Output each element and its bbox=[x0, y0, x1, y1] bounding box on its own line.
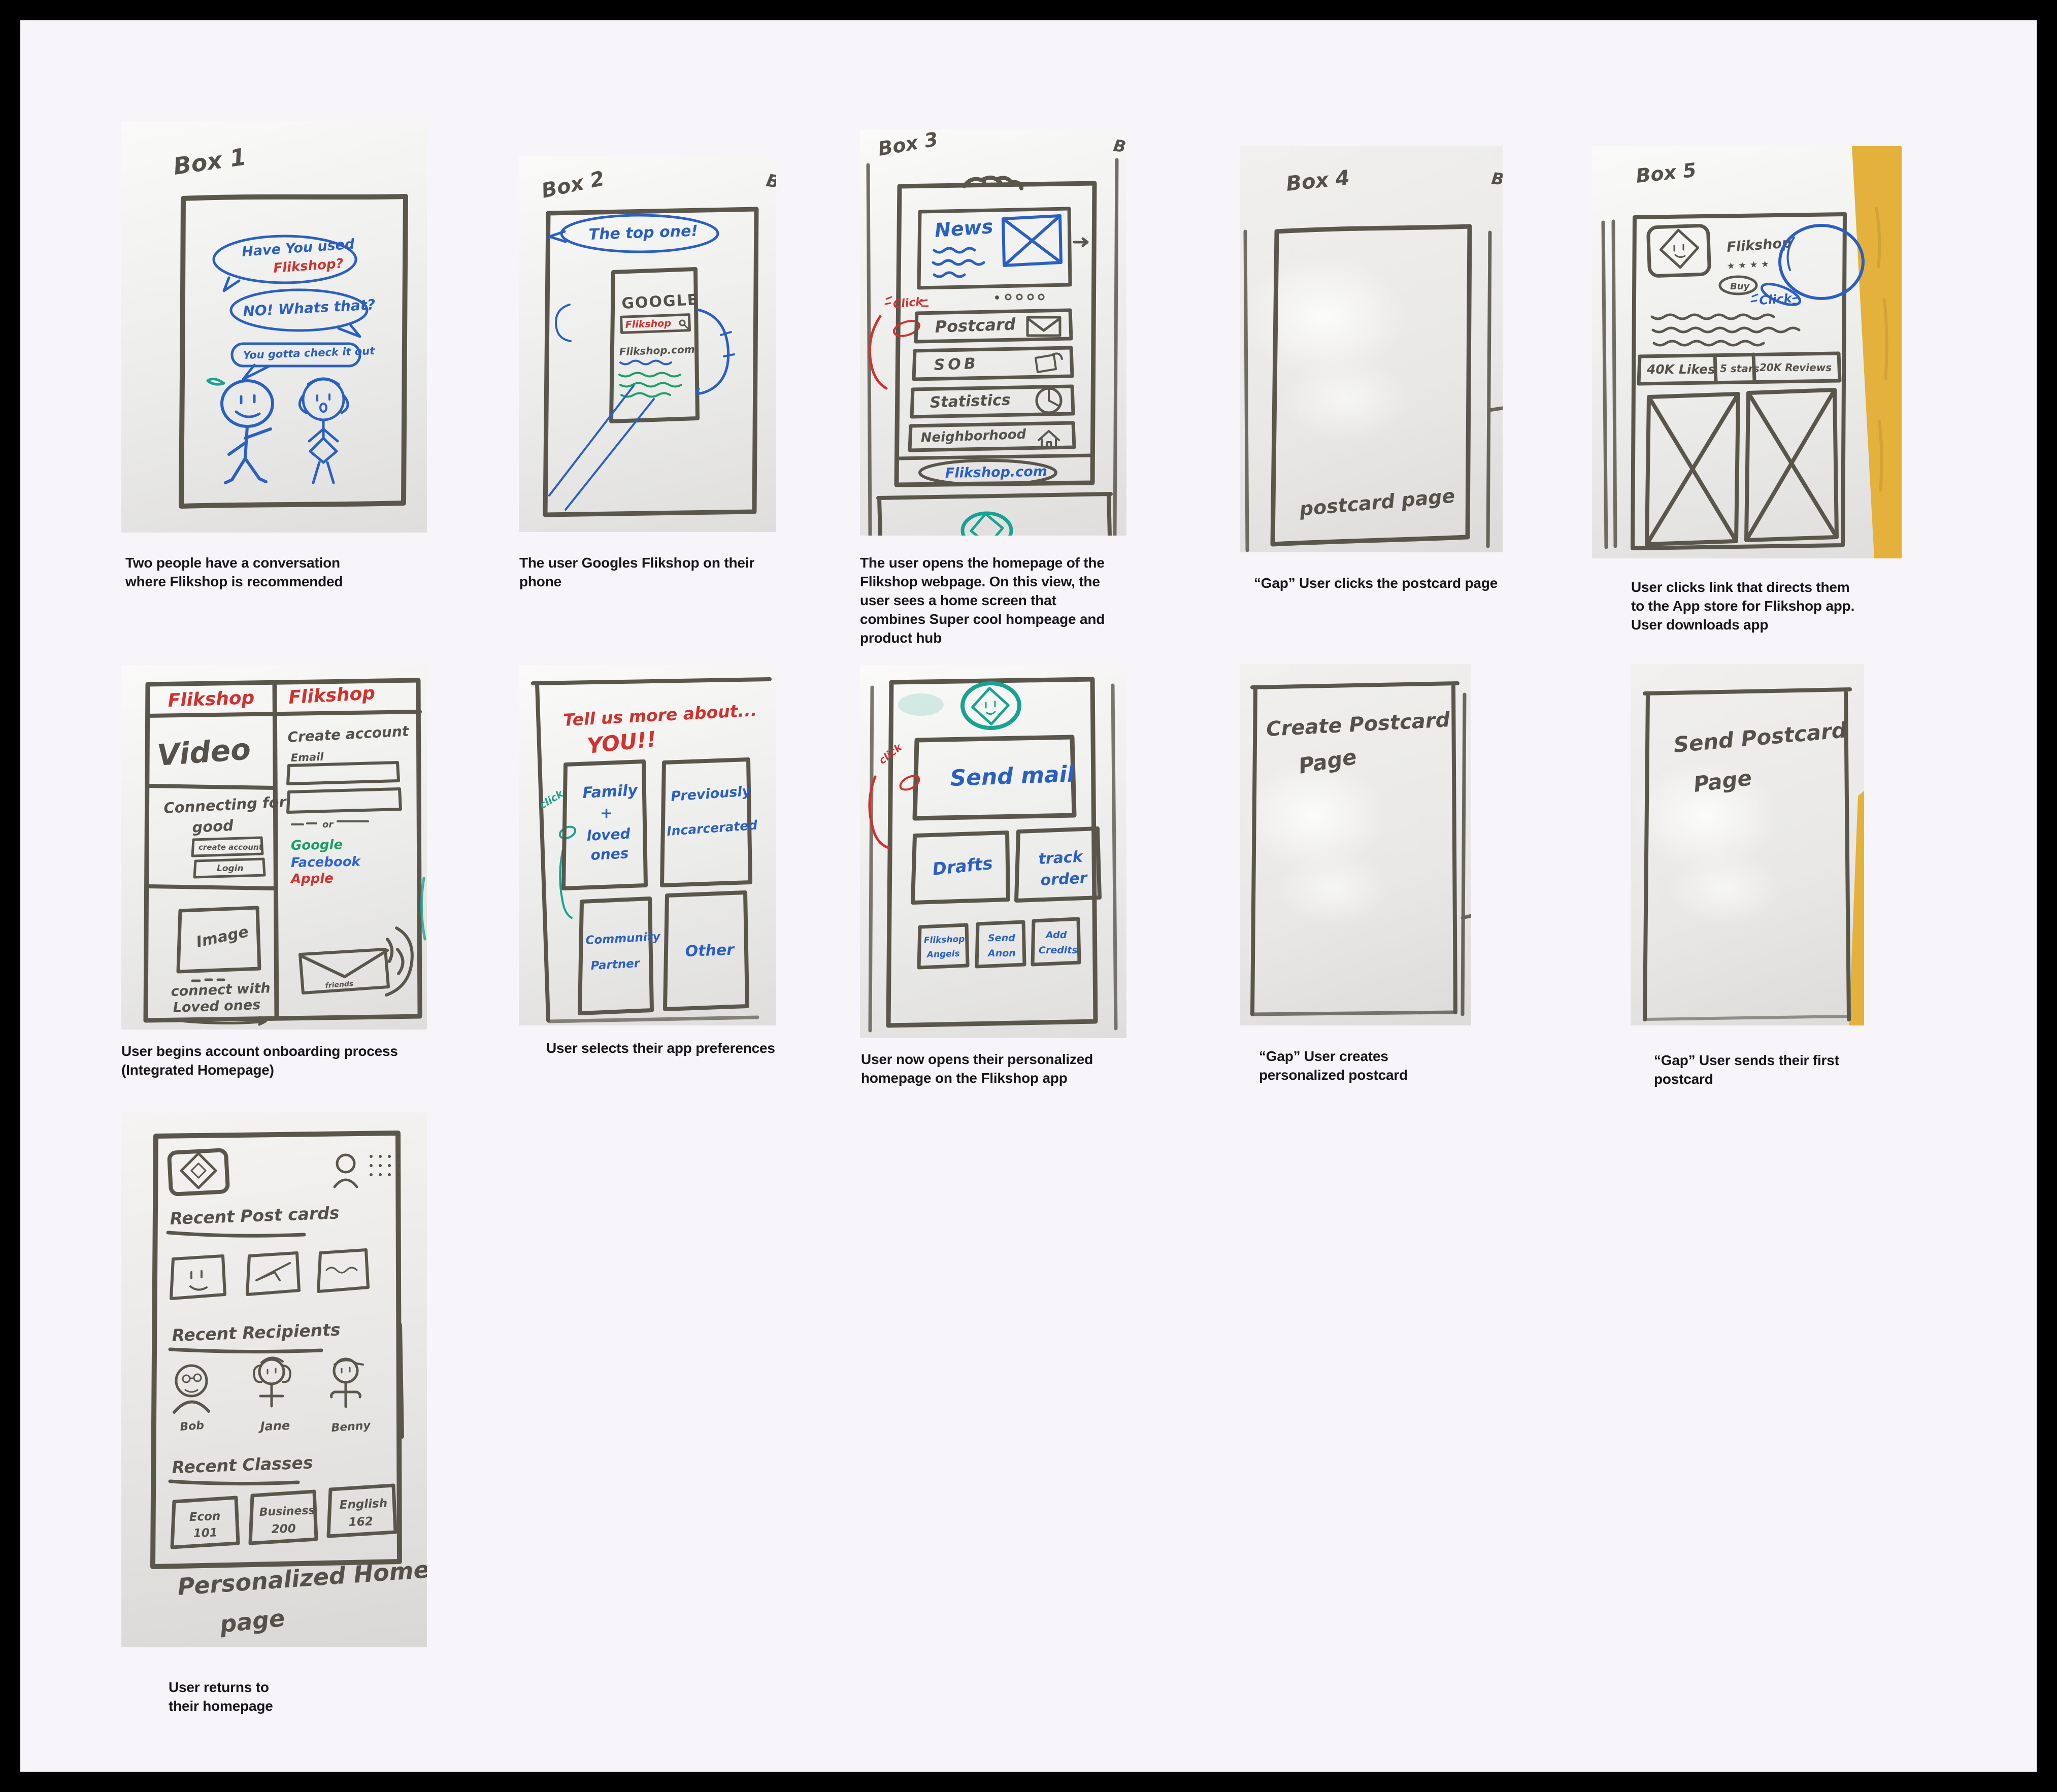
app-icon bbox=[963, 683, 1019, 728]
section-heading-recipients: Recent Recipients bbox=[172, 1319, 341, 1345]
result-snippet-line bbox=[620, 383, 681, 387]
sketch-send-postcard: Send Postcard Page bbox=[1631, 664, 1864, 1025]
svg-text:Credits: Credits bbox=[1039, 945, 1078, 956]
page-note-line2: page bbox=[218, 1604, 286, 1638]
sketch-google-search: Box 2 B The top one! GOOGLE Flikshop Fli… bbox=[519, 156, 776, 532]
storyboard-photo-preferences: Tell us more about... YOU!! click Family… bbox=[519, 665, 776, 1025]
flikshop-highlight: Flikshop? bbox=[273, 256, 344, 276]
postcard-thumb-plane bbox=[247, 1253, 299, 1295]
caption-send-postcard: “Gap” User sends their first postcard bbox=[1654, 1051, 1857, 1088]
svg-text:or: or bbox=[322, 819, 334, 830]
stars-stat: 5 stars bbox=[1720, 362, 1760, 375]
email-label: Email bbox=[290, 751, 324, 764]
hand-sketch bbox=[549, 305, 734, 510]
svg-text:Partner: Partner bbox=[590, 957, 641, 973]
page-note-line2: Page bbox=[1692, 765, 1753, 797]
caption-conversation: Two people have a conversation where Fli… bbox=[125, 553, 369, 591]
svg-text:NO! Whats that?: NO! Whats that? bbox=[243, 296, 376, 320]
apps-grid-icon bbox=[370, 1155, 400, 1176]
page-note: postcard page bbox=[1298, 484, 1456, 520]
nav-row-postcard: Postcard bbox=[916, 310, 1071, 342]
sketch-personalized-home: Recent Post cards Recent Recipients bbox=[121, 1112, 427, 1647]
storyboard-photo-onboarding: Flikshop Flikshop Video Connecting for g… bbox=[121, 665, 427, 1030]
svg-text:English: English bbox=[339, 1497, 387, 1512]
email-input bbox=[288, 762, 399, 784]
caption-create-postcard: “Gap” User creates personalized postcard bbox=[1259, 1047, 1477, 1084]
adjacent-frames bbox=[1603, 221, 1615, 547]
app-icon bbox=[169, 1150, 228, 1194]
news-card: News bbox=[919, 209, 1087, 300]
stats-bar: 40K Likes 5 stars 20K Reviews bbox=[1639, 353, 1840, 384]
drafts-button: Drafts bbox=[913, 833, 1008, 903]
storyboard-photo-send-postcard: Send Postcard Page bbox=[1631, 664, 1864, 1025]
storyboard-photo-postcard-gap: Box 4 B postcard page bbox=[1240, 146, 1503, 552]
flikshop-angels-button: Flikshop Angels bbox=[919, 925, 968, 968]
result-snippet-line bbox=[619, 373, 680, 377]
app-icon bbox=[1648, 225, 1709, 276]
svg-text:Click: Click bbox=[892, 295, 924, 311]
postcard-thumb-note bbox=[318, 1250, 368, 1291]
adjacent-frame-right bbox=[1463, 694, 1471, 1014]
svg-text:Jane: Jane bbox=[258, 1418, 290, 1434]
image-placeholder: Image bbox=[178, 908, 259, 972]
svg-text:Neighborhood: Neighborhood bbox=[920, 427, 1026, 446]
box-label: Box 5 bbox=[1635, 159, 1697, 187]
envelope-icon bbox=[1027, 317, 1060, 336]
wall-background bbox=[1852, 146, 1902, 558]
frame-overdraw bbox=[400, 1325, 402, 1437]
frame-bottom bbox=[549, 1017, 757, 1021]
caption-app-store: User clicks link that directs them to th… bbox=[1631, 578, 1865, 634]
search-engine-logo: GOOGLE bbox=[621, 291, 699, 313]
svg-text:Image: Image bbox=[194, 923, 250, 951]
svg-text:Login: Login bbox=[217, 864, 244, 874]
heading-underline bbox=[168, 1233, 304, 1236]
option-previously-incarcerated: Previously Incarcerated bbox=[662, 759, 758, 885]
svg-text:Business: Business bbox=[259, 1504, 315, 1519]
footer-divider bbox=[899, 455, 1092, 458]
box-label: Box 3 bbox=[876, 129, 940, 160]
speech-bubble-2: NO! Whats that? bbox=[231, 290, 376, 337]
svg-text:Loved ones: Loved ones bbox=[173, 997, 261, 1016]
svg-text:Flikshop: Flikshop bbox=[923, 934, 965, 946]
pie-chart-icon bbox=[1037, 388, 1061, 413]
frame-bottom bbox=[1252, 1012, 1453, 1014]
caption-google-search: The user Googles Flikshop on their phone bbox=[519, 553, 783, 591]
storyboard-canvas: Box 1 Have You used Flikshop? NO! Whats … bbox=[20, 20, 2037, 1772]
heading: Tell us more about... bbox=[562, 700, 757, 730]
screenshot-placeholders bbox=[1647, 390, 1837, 544]
adjacent-frame-left bbox=[1245, 231, 1247, 550]
caption-postcard-gap: “Gap” User clicks the postcard page bbox=[1254, 574, 1518, 592]
recipient-bob: Bob bbox=[174, 1366, 209, 1434]
heading-emphasis: YOU!! bbox=[586, 726, 657, 758]
image-placeholder-icon bbox=[1003, 216, 1061, 266]
nav-row-neighborhood: Neighborhood bbox=[910, 423, 1074, 450]
frame-bottom bbox=[1646, 1016, 1848, 1019]
neighbor-box-label: B bbox=[765, 170, 776, 192]
envelope-in-hand: friends bbox=[300, 928, 412, 995]
search-query: Flikshop bbox=[625, 318, 671, 330]
svg-text:good: good bbox=[192, 817, 234, 836]
caption-preferences: User selects their app preferences bbox=[546, 1039, 785, 1057]
svg-text:ones: ones bbox=[590, 845, 629, 864]
section-heading-classes: Recent Classes bbox=[172, 1452, 313, 1477]
caption-onboarding: User begins account onboarding process (… bbox=[121, 1042, 406, 1079]
neighbor-box-label: B bbox=[1490, 169, 1503, 189]
caption-homepage-hub: The user opens the homepage of the Fliks… bbox=[860, 553, 1114, 647]
stray-marker-line bbox=[421, 878, 425, 939]
house-icon bbox=[1039, 431, 1059, 447]
svg-text:Create account: Create account bbox=[287, 722, 410, 746]
caption-personalized-home: User returns to their homepage bbox=[169, 1678, 301, 1715]
right-panel: Create account Email or Google Facebook … bbox=[287, 722, 412, 995]
svg-text:Flikshop.com: Flikshop.com bbox=[945, 463, 1048, 481]
svg-text:The top one!: The top one! bbox=[588, 222, 699, 243]
footer-link: Flikshop.com bbox=[920, 460, 1056, 485]
next-screen-peek bbox=[878, 494, 1111, 536]
svg-text:200: 200 bbox=[271, 1522, 296, 1536]
sso-apple: Apple bbox=[290, 871, 334, 887]
search-result: Flikshop.com bbox=[619, 343, 695, 358]
storyboard-photo-homepage-hub: Box 3 B News bbox=[860, 129, 1126, 536]
storyboard-photo-conversation: Box 1 Have You used Flikshop? NO! Whats … bbox=[121, 121, 427, 533]
option-other: Other bbox=[665, 892, 747, 1009]
svg-text:Add: Add bbox=[1045, 930, 1067, 941]
option-community-partner: Community Partner bbox=[580, 899, 661, 1013]
svg-text:Econ: Econ bbox=[189, 1510, 220, 1524]
send-anon-button: Send Anon bbox=[977, 922, 1024, 967]
header-divider bbox=[148, 712, 420, 716]
page-note: Create Postcard bbox=[1266, 708, 1450, 741]
storyboard-photo-app-home: Send mail click Drafts track order Fliks… bbox=[860, 665, 1126, 1038]
svg-text:connect with: connect with bbox=[171, 980, 271, 1000]
wall-background bbox=[1849, 791, 1864, 1025]
heading-underline bbox=[170, 1349, 321, 1352]
class-card-business: Business 200 bbox=[250, 1491, 316, 1543]
profile-icon bbox=[335, 1155, 357, 1187]
sketch-homepage-hub: Box 3 B News bbox=[860, 129, 1126, 536]
speech-bubble-1: Have You used Flikshop? bbox=[214, 236, 356, 291]
brand-left: Flikshop bbox=[168, 687, 255, 711]
svg-text:Incarcerated: Incarcerated bbox=[666, 818, 758, 839]
marker-smudge bbox=[898, 693, 944, 716]
svg-text:Family: Family bbox=[582, 781, 639, 802]
sketch-create-postcard: Create Postcard Page bbox=[1240, 664, 1471, 1025]
svg-text:Angels: Angels bbox=[925, 949, 960, 960]
reviews-stat: 20K Reviews bbox=[1760, 361, 1832, 374]
track-order-button: track order bbox=[1016, 828, 1100, 901]
svg-text:SOB: SOB bbox=[934, 355, 979, 374]
storyboard-photo-google-search: Box 2 B The top one! GOOGLE Flikshop Fli… bbox=[519, 156, 776, 532]
svg-text:Benny: Benny bbox=[331, 1419, 372, 1435]
send-mail-button: Send mail bbox=[915, 737, 1076, 818]
postcard-thumb-smiley bbox=[171, 1256, 225, 1299]
caption-app-home: User now opens their personalized homepa… bbox=[861, 1050, 1110, 1087]
nav-row-sob: SOB bbox=[914, 348, 1072, 379]
class-card-english: English 162 bbox=[328, 1485, 395, 1536]
page-note-line2: Page bbox=[1297, 744, 1358, 779]
svg-text:Drafts: Drafts bbox=[932, 853, 994, 880]
svg-text:loved: loved bbox=[586, 825, 632, 844]
svg-text:Connecting for: Connecting for bbox=[163, 793, 288, 817]
svg-text:Send: Send bbox=[988, 933, 1015, 944]
sketch-app-store: Box 5 Flikshop ★ ★ ★ ★ Buy Click bbox=[1592, 146, 1902, 558]
storyboard-photo-create-postcard: Create Postcard Page bbox=[1240, 664, 1471, 1025]
storyboard-photo-app-store: Box 5 Flikshop ★ ★ ★ ★ Buy Click bbox=[1592, 146, 1902, 558]
sketch-onboarding: Flikshop Flikshop Video Connecting for g… bbox=[121, 665, 427, 1030]
stick-figure-male bbox=[208, 379, 273, 483]
package-icon bbox=[1036, 353, 1062, 372]
password-input bbox=[288, 789, 401, 812]
class-card-econ: Econ 101 bbox=[172, 1498, 238, 1547]
box-label: Box 4 bbox=[1285, 166, 1351, 196]
recipient-benny: Benny bbox=[331, 1359, 372, 1435]
video-label: Video bbox=[156, 732, 252, 773]
stick-figure-female bbox=[300, 379, 348, 483]
section-heading-postcards: Recent Post cards bbox=[170, 1203, 340, 1229]
description-lines bbox=[1652, 315, 1799, 345]
svg-text:Previously: Previously bbox=[670, 783, 752, 805]
sso-google: Google bbox=[291, 837, 343, 853]
sketch-app-home: Send mail click Drafts track order Fliks… bbox=[860, 665, 1126, 1038]
add-credits-button: Add Credits bbox=[1033, 919, 1079, 965]
carousel-dots bbox=[995, 294, 1044, 300]
buy-button: Buy bbox=[1720, 277, 1756, 294]
svg-text:Bob: Bob bbox=[180, 1419, 205, 1434]
svg-text:Other: Other bbox=[685, 941, 736, 960]
svg-text:Statistics: Statistics bbox=[930, 391, 1011, 412]
sketch-preferences: Tell us more about... YOU!! click Family… bbox=[519, 665, 776, 1025]
storyboard-photo-personalized-home: Recent Post cards Recent Recipients bbox=[121, 1112, 427, 1647]
sketch-conversation: Box 1 Have You used Flikshop? NO! Whats … bbox=[121, 121, 427, 533]
svg-text:Buy: Buy bbox=[1730, 281, 1750, 292]
svg-text:Postcard: Postcard bbox=[935, 314, 1016, 337]
svg-text:Anon: Anon bbox=[987, 948, 1016, 959]
sso-facebook: Facebook bbox=[291, 854, 361, 871]
adjacent-frame-right bbox=[1488, 233, 1503, 546]
svg-text:101: 101 bbox=[193, 1526, 218, 1540]
sketch-postcard-gap: Box 4 B postcard page bbox=[1240, 146, 1503, 552]
result-underline bbox=[620, 361, 671, 364]
nav-row-statistics: Statistics bbox=[912, 386, 1073, 417]
login-button: Login bbox=[194, 859, 264, 877]
svg-text:+: + bbox=[600, 805, 613, 822]
brand-right: Flikshop bbox=[288, 683, 376, 708]
svg-text:create account: create account bbox=[198, 843, 263, 852]
speech-bubble-3: You gotta check it out bbox=[232, 344, 376, 379]
box-label: Box 1 bbox=[172, 143, 248, 180]
likes-stat: 40K Likes bbox=[1646, 362, 1715, 377]
speech-bubble: The top one! bbox=[549, 215, 718, 252]
left-panel: Video Connecting for good create account… bbox=[148, 732, 287, 1024]
carousel-dashes bbox=[192, 980, 224, 981]
neighbor-box-label: B bbox=[1112, 136, 1126, 156]
svg-text:order: order bbox=[1040, 869, 1089, 889]
svg-text:Send mail: Send mail bbox=[950, 761, 1076, 791]
recipient-jane: Jane bbox=[254, 1357, 290, 1434]
svg-text:162: 162 bbox=[348, 1515, 373, 1529]
svg-text:News: News bbox=[934, 215, 994, 242]
option-family: Family + loved ones bbox=[563, 761, 646, 888]
create-account-button: create account bbox=[192, 838, 263, 856]
heading-underline bbox=[170, 1481, 298, 1484]
arrow-right-icon bbox=[1074, 239, 1087, 246]
magnifier-icon bbox=[680, 320, 688, 328]
svg-text:track: track bbox=[1038, 848, 1084, 868]
box-label: Box 2 bbox=[540, 167, 607, 203]
svg-text:You gotta check it out: You gotta check it out bbox=[243, 345, 375, 361]
page-note: Send Postcard bbox=[1673, 717, 1848, 757]
star-rating: ★ ★ ★ ★ bbox=[1727, 259, 1769, 272]
